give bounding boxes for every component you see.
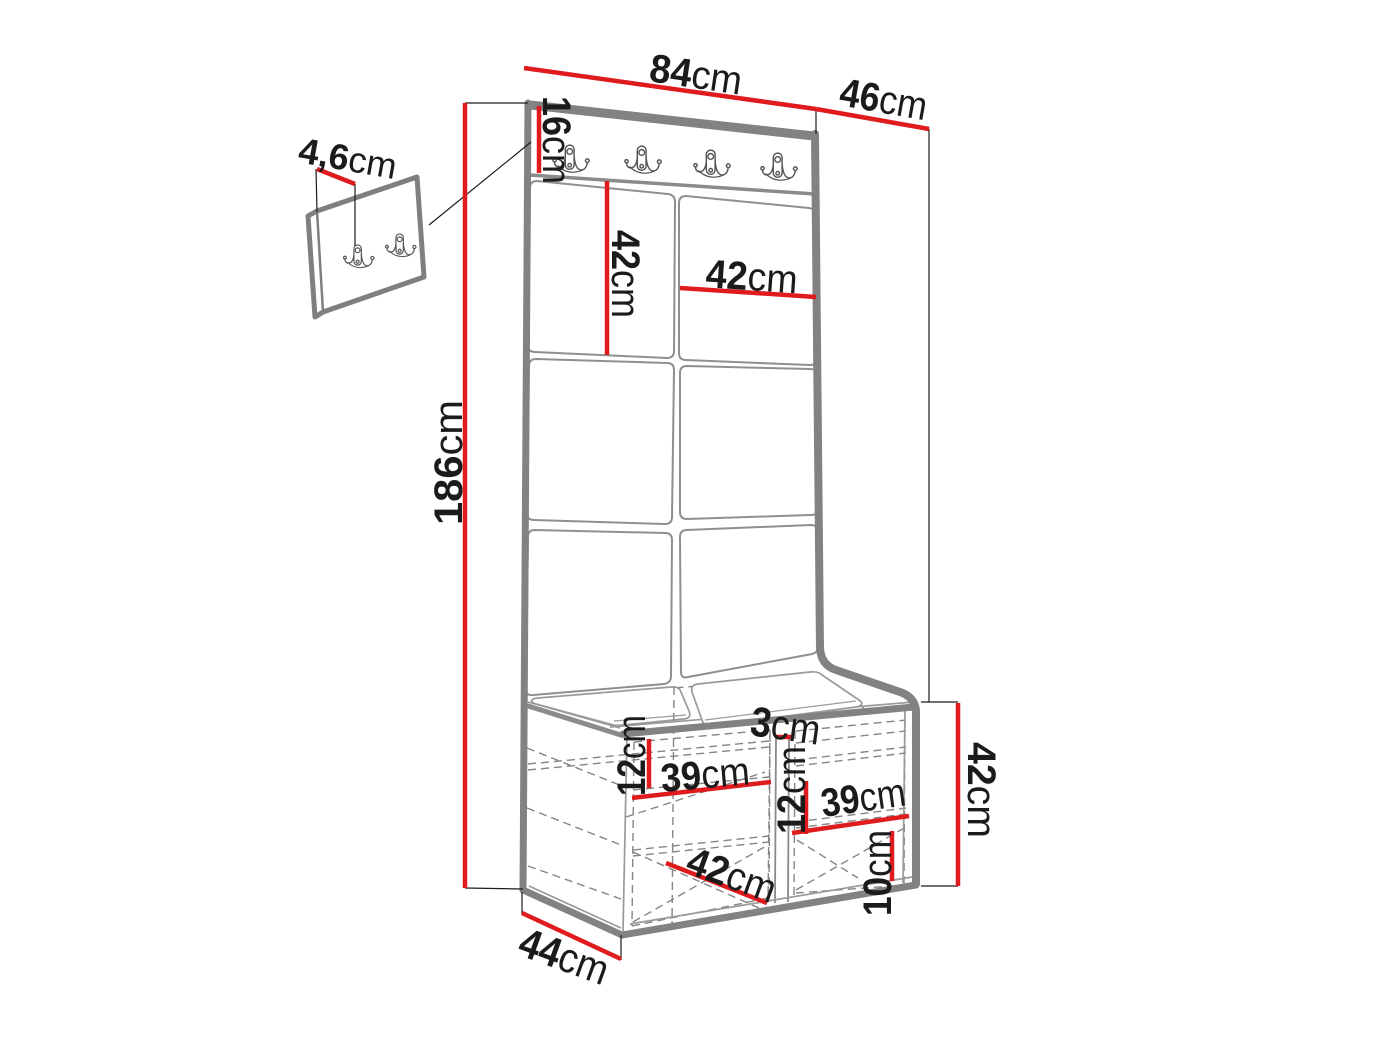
svg-text:42cm: 42cm — [704, 252, 799, 302]
svg-text:12cm: 12cm — [610, 715, 654, 796]
svg-text:12cm: 12cm — [770, 746, 814, 834]
svg-text:3cm: 3cm — [748, 697, 824, 753]
svg-text:10cm: 10cm — [856, 830, 900, 916]
svg-text:186cm: 186cm — [427, 400, 471, 525]
svg-text:16cm: 16cm — [534, 96, 578, 184]
svg-text:42cm: 42cm — [603, 230, 647, 318]
svg-text:39cm: 39cm — [659, 749, 751, 801]
svg-text:42cm: 42cm — [959, 742, 1003, 838]
